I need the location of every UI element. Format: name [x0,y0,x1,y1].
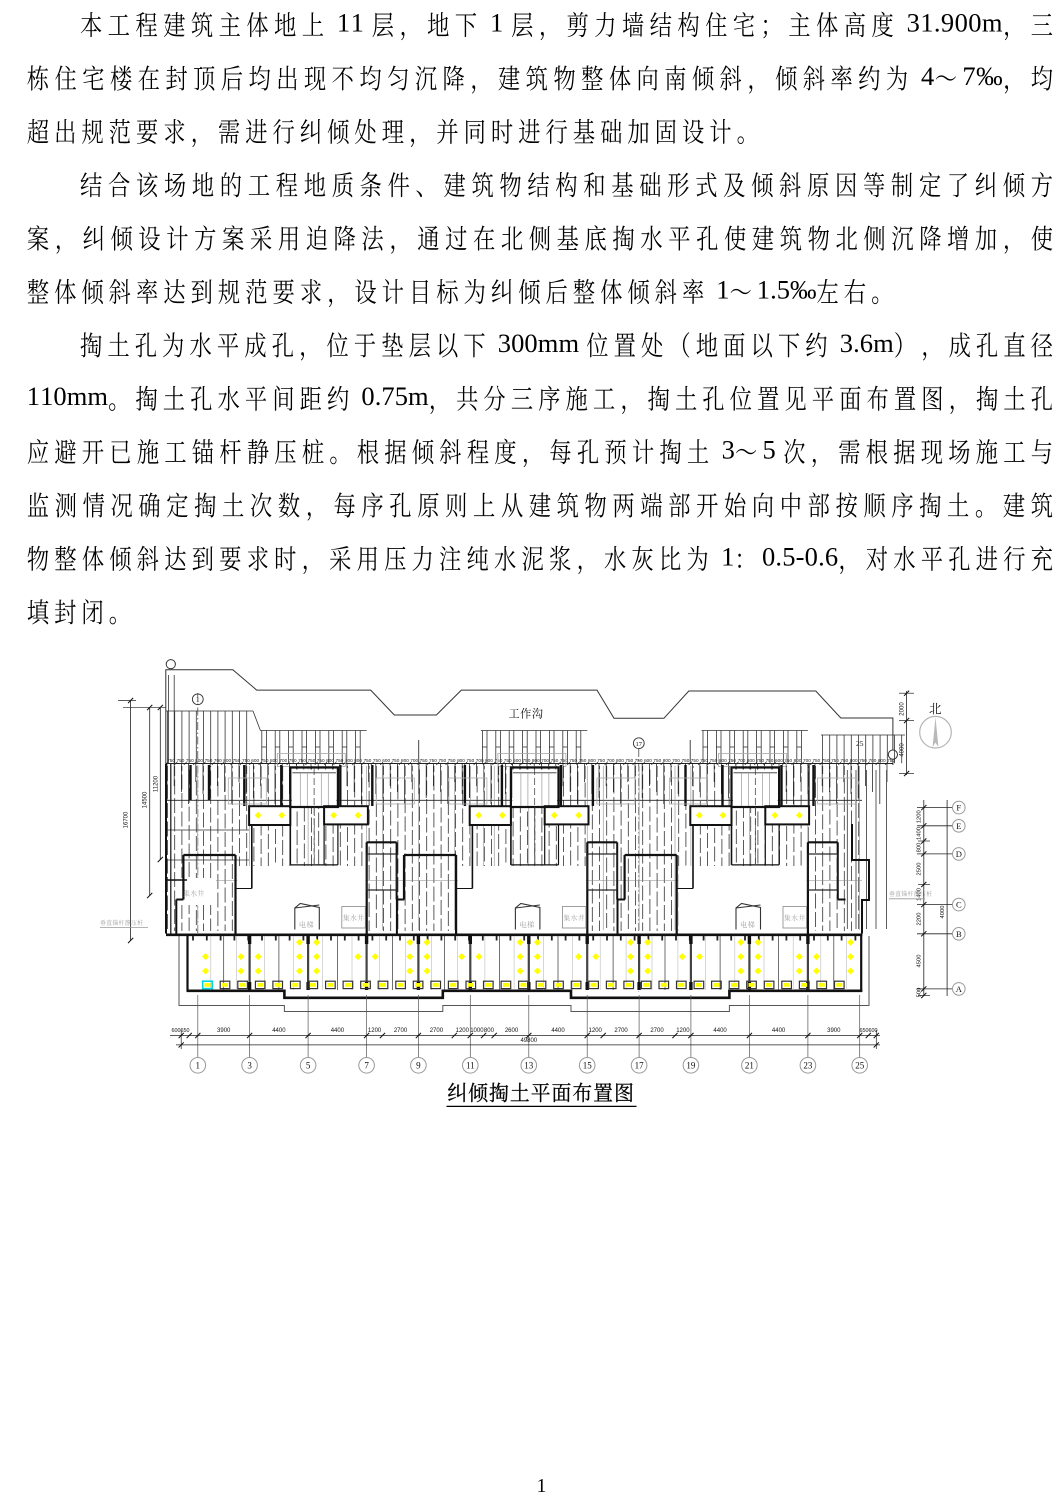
svg-text:B: B [956,929,962,939]
svg-text:F: F [956,803,961,813]
svg-text:700: 700 [345,758,353,763]
svg-text:800: 800 [663,758,671,763]
svg-text:13: 13 [524,1061,534,1071]
svg-text:750: 750 [364,758,372,763]
svg-text:1: 1 [196,1061,201,1071]
svg-text:-: - [796,541,805,571]
svg-text:9: 9 [941,8,954,38]
svg-text:1: 1 [337,8,350,38]
svg-text:750: 750 [822,758,830,763]
svg-text:25: 25 [856,739,864,748]
svg-text:800: 800 [917,843,923,853]
svg-text:750: 750 [560,758,568,763]
svg-text:750: 750 [242,758,250,763]
svg-text:2600: 2600 [505,1028,519,1034]
svg-text:7: 7 [364,1061,369,1071]
svg-text:800: 800 [485,758,493,763]
svg-text:0: 0 [511,328,524,358]
svg-text:700: 700 [279,758,287,763]
svg-text:.: . [775,541,782,571]
svg-text:750: 750 [653,758,661,763]
svg-text:750: 750 [176,758,184,763]
svg-text:4400: 4400 [551,1028,565,1034]
svg-text:750: 750 [392,758,400,763]
svg-text:1: 1 [27,381,40,411]
svg-text:700: 700 [607,758,615,763]
svg-text:19: 19 [686,1061,696,1071]
svg-text:800: 800 [401,758,409,763]
svg-text:750: 750 [429,758,437,763]
svg-text:750: 750 [831,758,839,763]
svg-text:750: 750 [373,758,381,763]
svg-text:3: 3 [907,8,920,38]
svg-text:5: 5 [395,381,408,411]
svg-text:750: 750 [205,758,213,763]
svg-text:1: 1 [721,541,734,571]
svg-text:1: 1 [716,274,729,304]
svg-text:650: 650 [181,1028,190,1034]
svg-text:21: 21 [745,1061,754,1071]
svg-text:700: 700 [803,758,811,763]
svg-text:.: . [853,328,860,358]
svg-text:23: 23 [803,1061,813,1071]
svg-text:11: 11 [466,1061,475,1071]
svg-text:800: 800 [223,758,231,763]
svg-text:4400: 4400 [772,1028,786,1034]
svg-text:0: 0 [955,8,968,38]
svg-text:800: 800 [457,758,465,763]
svg-text:0: 0 [53,381,66,411]
svg-text:1200: 1200 [676,1028,690,1034]
svg-text:m: m [67,381,88,411]
svg-text:600: 600 [172,1028,181,1034]
svg-text:7: 7 [381,381,394,411]
svg-text:650: 650 [860,1028,869,1034]
svg-text:0: 0 [762,541,775,571]
svg-text:A: A [956,984,963,994]
svg-text:750: 750 [448,758,456,763]
svg-text:750: 750 [504,758,512,763]
svg-text:750: 750 [597,758,605,763]
svg-text:800: 800 [616,758,624,763]
svg-text:4500: 4500 [917,955,923,968]
svg-text:.: . [818,541,825,571]
svg-text:C: C [956,900,962,910]
svg-text:1: 1 [757,274,770,304]
svg-text:D: D [956,849,962,859]
svg-text:11200: 11200 [153,775,159,792]
svg-text:600: 600 [775,758,783,763]
svg-text:1200: 1200 [456,1028,470,1034]
svg-text:m: m [559,328,580,358]
svg-text:750: 750 [317,758,325,763]
svg-text:750: 750 [700,758,708,763]
svg-text:600: 600 [644,758,652,763]
svg-text:1: 1 [490,8,503,38]
svg-text:750: 750 [551,758,559,763]
svg-text:700: 700 [738,758,746,763]
svg-text:49800: 49800 [520,1038,537,1044]
svg-text:750: 750 [420,758,428,763]
svg-text:E: E [956,821,961,831]
svg-text:750: 750 [635,758,643,763]
svg-text:2700: 2700 [650,1028,664,1034]
svg-text:2700: 2700 [614,1028,628,1034]
svg-text:m: m [408,381,429,411]
svg-text:m: m [873,328,894,358]
svg-text:7: 7 [962,61,975,91]
svg-text:700: 700 [672,758,680,763]
svg-text:750: 750 [522,758,530,763]
svg-text:750: 750 [579,758,587,763]
svg-text:1200: 1200 [917,810,923,823]
svg-text:‰: ‰ [790,274,817,304]
svg-text:800: 800 [484,1028,495,1034]
svg-text:4000: 4000 [940,906,946,919]
svg-text:2700: 2700 [394,1028,408,1034]
svg-text:4400: 4400 [713,1028,727,1034]
svg-text:800: 800 [588,758,596,763]
svg-text:3900: 3900 [217,1028,231,1034]
svg-text:2000: 2000 [900,702,906,716]
svg-text:750: 750 [625,758,633,763]
svg-text:1000: 1000 [470,1028,484,1034]
svg-text:750: 750 [307,758,315,763]
svg-text:600: 600 [513,758,521,763]
svg-text:500: 500 [917,988,923,998]
svg-text:750: 750 [438,758,446,763]
svg-text:17: 17 [635,1061,645,1071]
svg-text:25: 25 [855,1061,865,1071]
svg-text:1: 1 [40,381,53,411]
svg-text:0: 0 [524,328,537,358]
svg-text:m: m [982,8,1003,38]
svg-text:750: 750 [691,758,699,763]
svg-text:2700: 2700 [430,1028,444,1034]
svg-text:5: 5 [763,435,776,465]
svg-text:4: 4 [921,61,934,91]
svg-text:5: 5 [777,274,790,304]
svg-text:1: 1 [351,8,364,38]
svg-text:1400: 1400 [917,827,923,840]
svg-text:4400: 4400 [272,1028,286,1034]
svg-text:800: 800 [878,758,886,763]
svg-text:1200: 1200 [368,1028,382,1034]
svg-text:3: 3 [247,1061,252,1071]
svg-text:750: 750 [812,758,820,763]
svg-text:0: 0 [805,541,818,571]
svg-text:0: 0 [968,8,981,38]
svg-text:750: 750 [756,758,764,763]
svg-text:600: 600 [251,758,259,763]
svg-text:700: 700 [541,758,549,763]
svg-text:16700: 16700 [124,811,130,828]
svg-text:1200: 1200 [589,1028,603,1034]
svg-text:9: 9 [416,1061,421,1071]
svg-text:m: m [538,328,559,358]
svg-text:3: 3 [722,435,735,465]
svg-text:600: 600 [382,758,390,763]
svg-text:700: 700 [410,758,418,763]
svg-text:2500: 2500 [917,863,923,876]
svg-text:800: 800 [794,758,802,763]
svg-text:14500: 14500 [143,791,149,808]
svg-text:2200: 2200 [917,913,923,926]
svg-text:5: 5 [306,1061,311,1071]
svg-text:.: . [934,8,941,38]
svg-text:750: 750 [466,758,474,763]
svg-text:1: 1 [537,1476,547,1497]
svg-text:4000: 4000 [900,743,906,757]
svg-text:m: m [87,381,108,411]
svg-text:3: 3 [498,328,511,358]
svg-text:800: 800 [719,758,727,763]
svg-text:1: 1 [920,8,933,38]
svg-text:.: . [375,381,382,411]
svg-text:‰: ‰ [976,61,1003,91]
svg-text:6: 6 [825,541,838,571]
svg-text:0: 0 [361,381,374,411]
svg-text:750: 750 [681,758,689,763]
svg-text:4400: 4400 [331,1028,345,1034]
svg-text:15: 15 [583,1061,593,1071]
svg-text:5: 5 [782,541,795,571]
svg-text:17: 17 [636,741,643,748]
svg-text:3: 3 [840,328,853,358]
svg-text:6: 6 [860,328,873,358]
svg-text:750: 750 [186,758,194,763]
svg-text:3900: 3900 [827,1028,841,1034]
